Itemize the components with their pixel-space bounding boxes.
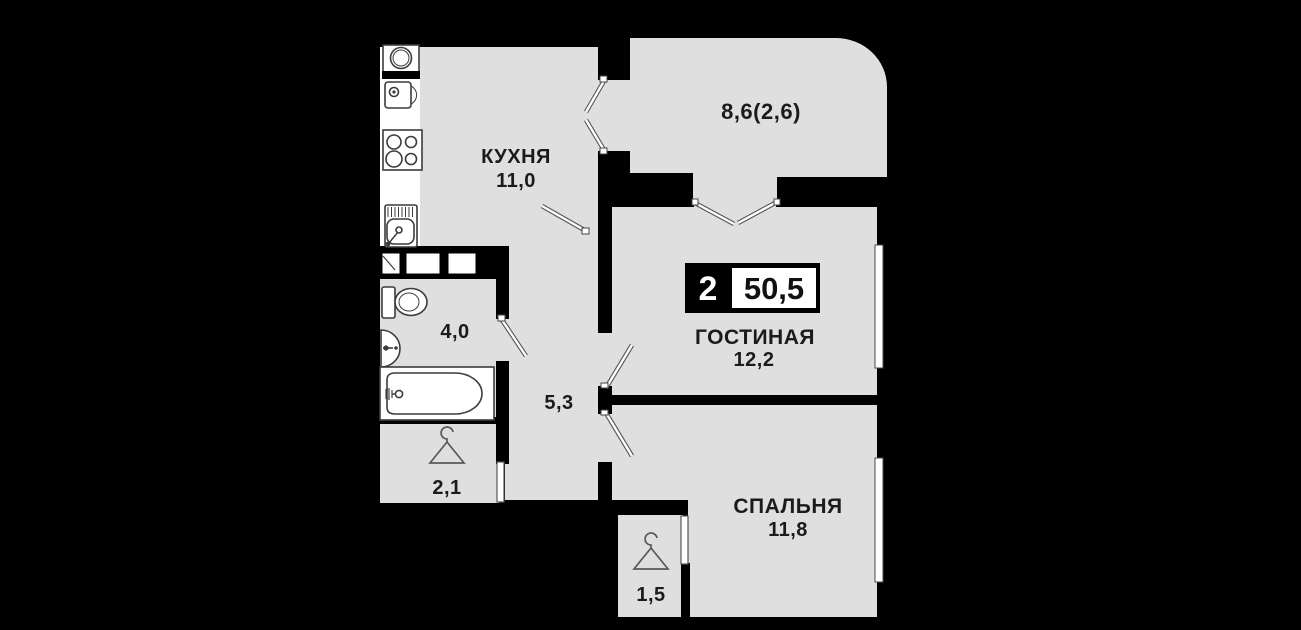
wall-balcony-left — [628, 173, 693, 207]
hallway-area: 5,3 — [544, 392, 573, 414]
floor-plan: КУХНЯ 11,0 8,6(2,6) ГОСТИНАЯ 12,2 СПАЛЬН… — [0, 0, 1301, 630]
living-area: 12,2 — [734, 349, 775, 371]
balcony-area: 8,6(2,6) — [721, 99, 801, 124]
wall-closet-right — [681, 563, 690, 617]
living-window — [875, 245, 883, 368]
wall-kitchen-balcony — [598, 151, 630, 207]
bedroom-window — [875, 458, 883, 582]
wardrobe-area: 2,1 — [432, 477, 461, 499]
wall-wardrobe-right — [496, 423, 509, 464]
stove-icon — [383, 130, 422, 170]
wall-balcony-right — [777, 177, 890, 207]
toilet-icon — [382, 287, 427, 318]
bathroom-area: 4,0 — [440, 321, 469, 343]
wall-hall-lower — [598, 462, 612, 503]
kitchen-label: КУХНЯ — [481, 146, 551, 168]
bathtub-icon — [380, 367, 494, 420]
bedroom-label: СПАЛЬНЯ — [733, 495, 842, 518]
room-hallway-floor — [505, 248, 602, 504]
wall-living-bedroom — [598, 395, 879, 405]
wall-kitchen-top — [378, 25, 602, 47]
wardrobe-door-leaf — [497, 462, 504, 502]
badge-room-count: 2 — [699, 270, 718, 308]
bedroom-area: 11,8 — [768, 519, 808, 541]
living-label: ГОСТИНАЯ — [695, 326, 815, 349]
closet-area: 1,5 — [636, 584, 665, 606]
wall-bathroom-right-a — [496, 277, 509, 319]
wall-shaft — [598, 25, 630, 80]
wall-hallway-bottom — [503, 500, 688, 515]
badge-total-area: 50,5 — [744, 271, 804, 306]
area-badge: 2 50,5 — [685, 263, 820, 313]
closet-door-leaf — [681, 516, 688, 564]
wall-bathroom-right-b — [496, 361, 509, 423]
washing-machine-icon — [382, 45, 420, 79]
kitchen-sink-icon — [385, 205, 417, 247]
kitchen-area: 11,0 — [496, 170, 536, 192]
wall-living-left — [598, 205, 612, 333]
cabinet-row — [381, 252, 477, 275]
